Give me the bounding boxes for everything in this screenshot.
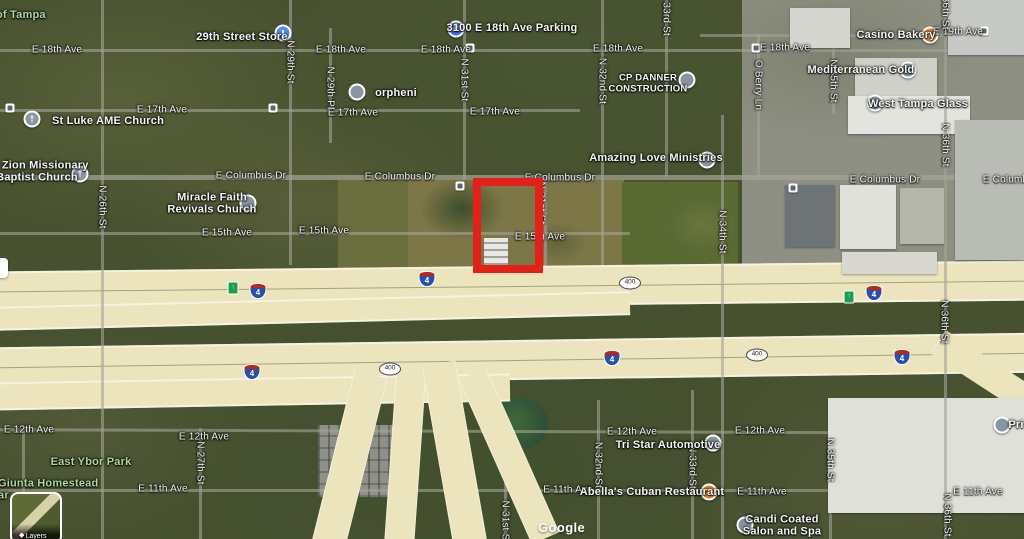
street-label: E 18th Ave (316, 45, 366, 56)
street-label: N 32nd St (597, 58, 608, 104)
poi-label-line: St Luke AME Church (52, 115, 164, 127)
poi-label[interactable]: Pri (1008, 419, 1023, 431)
street-label: E Columbus Dr (216, 171, 286, 182)
street-label: N 36th St (939, 300, 950, 344)
road (0, 49, 1024, 52)
building (900, 188, 944, 244)
street-label: E 12th Ave (607, 427, 657, 438)
layers-label: Layers (12, 533, 60, 539)
street-label: N 34th St (717, 210, 728, 254)
poi-label[interactable]: Miracle FaithRevivals Church (167, 192, 256, 217)
street-label: N 36th St (940, 0, 951, 30)
poi-label[interactable]: East Ybor Park (51, 456, 132, 468)
poi-label-line: Pri (1008, 419, 1023, 431)
route-400-shield: 400 (619, 277, 641, 290)
street-label: E 17th Ave (470, 107, 520, 118)
street-label: E 18th Ave (760, 43, 810, 54)
street-label: E 11th Ave (737, 487, 786, 498)
poi-label[interactable]: St Luke AME Church (52, 115, 164, 127)
building (842, 252, 937, 274)
street-label: N 33rd St (687, 445, 698, 489)
street-label: E Columbus Dr (850, 175, 920, 186)
poi-label-line: Abella's Cuban Restaurant (580, 486, 725, 498)
exit-sign-icon: ↑ (844, 291, 855, 304)
street-label: O Berry Ln (753, 60, 764, 110)
route-400-shield: 400 (746, 349, 768, 362)
street-label: E Columbus Dr (365, 172, 435, 183)
street-label: N 32nd St (593, 442, 604, 488)
poi-label[interactable]: CP DANNERCONSTRUCTION (609, 73, 688, 94)
poi-label-line: Candi Coated (743, 514, 821, 526)
transit-stop-icon[interactable] (456, 182, 465, 191)
poi-label-line: 3100 E 18th Ave Parking (447, 22, 578, 34)
street-label: E 18th Ave (593, 44, 643, 55)
street-label: E 18th Ave (421, 45, 471, 56)
transit-stop-icon[interactable] (789, 184, 798, 193)
poi-label-line: East Ybor Park (51, 456, 132, 468)
street-label: E 11th Ave (953, 487, 1002, 498)
poi-label[interactable]: 29th Street Store (196, 31, 287, 43)
poi-label-line: Tri Star Automotive (616, 439, 721, 451)
road (601, 0, 604, 270)
poi-label-line: Salon and Spa (743, 526, 821, 538)
poi-label-line: Mediterranean Gold (808, 64, 915, 76)
poi-label-line: Amazing Love Ministries (589, 152, 723, 164)
poi-label[interactable]: West Tampa Glass (868, 98, 968, 110)
street-label: N 27th St (195, 441, 206, 485)
poi-label-line: Baptist Church (0, 172, 89, 184)
street-label: N 31st St (500, 501, 511, 539)
street-label: N 31st St (459, 59, 470, 102)
street-label: N 29th St (285, 40, 296, 84)
street-label: N 36th St (940, 123, 951, 167)
layers-button[interactable]: ◆ Layers (10, 492, 62, 539)
transit-stop-icon[interactable] (6, 104, 15, 113)
street-label: E 15th Ave (202, 228, 252, 239)
poi-label-line: West Tampa Glass (868, 98, 968, 110)
building (785, 185, 835, 247)
road-overpass (944, 0, 947, 539)
street-label: E 11th Ave (138, 484, 187, 495)
poi-label[interactable]: Mediterranean Gold (808, 64, 915, 76)
street-label: N 29th Pl (325, 67, 336, 110)
street-label: N 26th St (97, 185, 108, 229)
church-pin-icon[interactable]: † (24, 111, 41, 128)
satellite-map-canvas[interactable]: E 18th AveE 18th AveE 18th AveE 18th Ave… (0, 0, 1024, 539)
poi-label-line: Miracle Faith (167, 192, 256, 204)
exit-sign-icon: ↑ (228, 282, 239, 295)
poi-label[interactable]: of Tampa (0, 9, 46, 21)
poi-label-line: Mt Zion Missionary (0, 160, 89, 172)
cut-route-shield (0, 258, 8, 278)
poi-label[interactable]: Amazing Love Ministries (589, 152, 723, 164)
street-label: E 12th Ave (4, 425, 54, 436)
poi-label[interactable]: orpheni (375, 87, 417, 99)
poi-label[interactable]: Mt Zion MissionaryBaptist Church (0, 160, 89, 185)
transit-stop-icon[interactable] (269, 104, 278, 113)
google-logo[interactable]: Google (538, 520, 585, 535)
poi-label[interactable]: 3100 E 18th Ave Parking (447, 22, 578, 34)
poi-label-line: Giunta Homestead (0, 478, 98, 490)
street-label: E 12th Ave (735, 426, 785, 437)
maps-app: { "attribution": "Google", "layers_contr… (0, 0, 1024, 539)
street-label: N 36th St (942, 493, 953, 537)
street-label: N 35th St (825, 438, 836, 482)
generic-pin-icon[interactable] (349, 84, 366, 101)
warehouse (840, 185, 896, 249)
warehouse (955, 120, 1024, 260)
poi-label-line: Revivals Church (167, 204, 256, 216)
poi-label-line: CONSTRUCTION (609, 84, 688, 95)
route-400-shield: 400 (379, 363, 401, 376)
poi-label[interactable]: Candi CoatedSalon and Spa (743, 514, 821, 539)
poi-label[interactable]: Casino Bakery (856, 29, 935, 41)
street-label: N 33rd St (661, 0, 672, 36)
poi-label[interactable]: Tri Star Automotive (616, 439, 721, 451)
poi-label-line: 29th Street Store (196, 31, 287, 43)
poi-label-line: Casino Bakery (856, 29, 935, 41)
road-overpass (721, 115, 724, 539)
street-label: E 18th Ave (32, 45, 82, 56)
poi-label-line: orpheni (375, 87, 417, 99)
street-label: E 17th Ave (137, 105, 187, 116)
street-label: E 15th Ave (299, 226, 349, 237)
street-label: E Columbus Dr (983, 175, 1024, 186)
highlight-rectangle (473, 178, 543, 273)
poi-label[interactable]: Abella's Cuban Restaurant (580, 486, 725, 498)
poi-label-line: of Tampa (0, 9, 46, 21)
